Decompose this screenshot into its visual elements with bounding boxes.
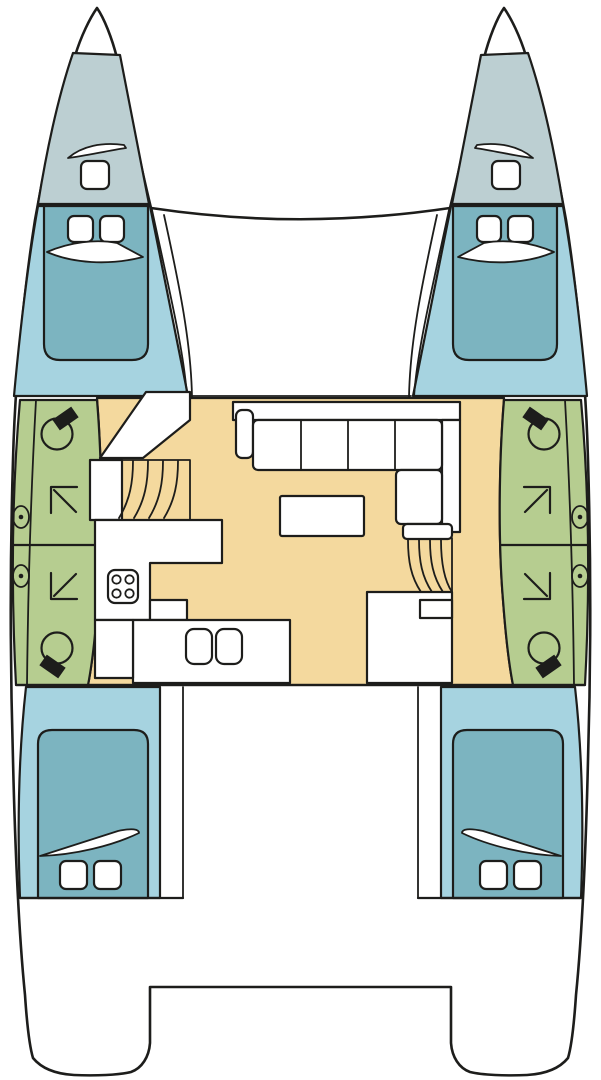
settee-end-step	[403, 524, 452, 539]
cabin-hatch	[100, 216, 124, 242]
settee-backrest	[233, 402, 460, 420]
starboard-walkway-step	[420, 600, 452, 618]
settee-armrest	[236, 410, 253, 458]
settee-backrest-side	[442, 420, 460, 532]
cabin-hatch	[94, 861, 121, 889]
stove	[108, 570, 138, 603]
saloon-table	[280, 496, 364, 536]
cabin-hatch	[60, 861, 87, 889]
forward-berth	[44, 206, 148, 360]
deck-plan	[0, 0, 601, 1080]
sink-bowl	[216, 629, 242, 664]
port-stairs-landing	[90, 460, 122, 520]
porthole-dot	[19, 574, 24, 579]
bow-deck-hatch	[81, 161, 109, 189]
bathroom-section	[13, 400, 101, 685]
porthole-dot	[19, 515, 24, 520]
port-aft-companionway	[95, 620, 133, 678]
deck-plan-canvas	[0, 0, 601, 1080]
sink-bowl	[186, 629, 212, 664]
cabin-hatch	[68, 216, 93, 242]
galley-step	[150, 600, 187, 620]
settee-corner-cushion	[396, 470, 442, 524]
